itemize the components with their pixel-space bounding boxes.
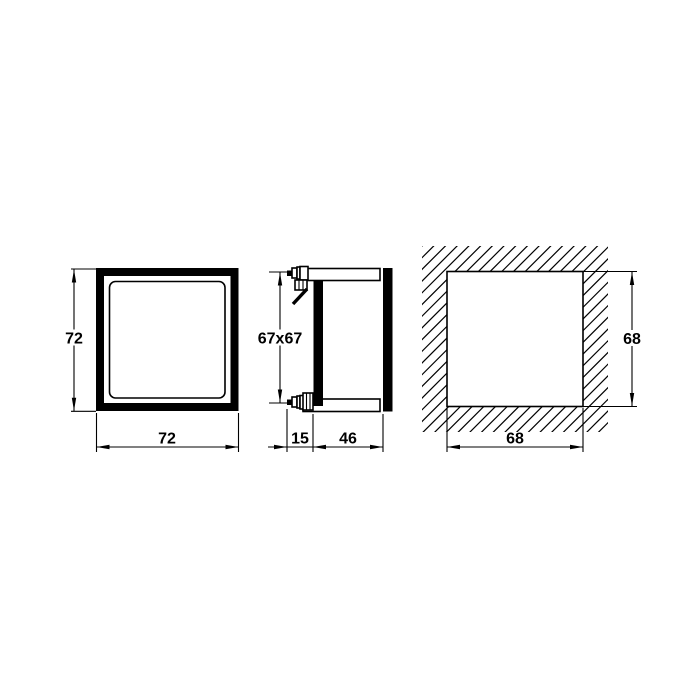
side-face-dimension: 67x67 (256, 272, 304, 403)
arrowhead (313, 445, 326, 449)
arrowhead (370, 445, 383, 449)
arrowhead (97, 445, 110, 449)
front-height-dimension: 72 (61, 269, 96, 411)
side-face-label: 67x67 (258, 331, 303, 348)
arrowhead (447, 445, 460, 449)
side-rear-frame-bar (314, 281, 324, 406)
side-view: 67x67 15 46 (256, 267, 393, 453)
arrowhead (226, 445, 239, 449)
drawing-canvas: 72 72 (0, 0, 700, 700)
side-clamp-screw-top (287, 267, 308, 305)
arrowhead (274, 445, 287, 449)
arrowhead (278, 390, 282, 403)
side-clamp-depth-label: 15 (291, 431, 309, 448)
side-front-bezel-bar (383, 268, 393, 412)
front-width-dimension: 72 (97, 413, 239, 452)
side-body-depth-label: 46 (339, 431, 357, 448)
panel-height-label: 68 (623, 331, 641, 348)
front-width-label: 72 (158, 431, 176, 448)
clamp-block (300, 267, 308, 281)
panel-height-dimension: 68 (583, 272, 646, 407)
arrowhead (72, 398, 76, 411)
side-depth-dimensions: 15 46 (268, 409, 383, 452)
arrowhead (630, 393, 634, 406)
arrowhead (570, 445, 583, 449)
panel-cutout-opening (447, 272, 583, 407)
hatch-line (593, 240, 700, 438)
arrowhead (278, 273, 282, 286)
side-case-top-wall (303, 269, 380, 281)
arrowhead (630, 272, 634, 285)
arrowhead (72, 270, 76, 283)
technical-drawing: 72 72 (0, 0, 700, 700)
panel-width-dimension: 68 (447, 408, 583, 452)
front-view: 72 72 (61, 268, 239, 452)
side-clamp-screw-bottom (287, 393, 313, 410)
front-display-window (110, 282, 226, 399)
front-height-label: 72 (65, 331, 83, 348)
clamp-nut (303, 393, 313, 410)
panel-width-label: 68 (506, 431, 524, 448)
side-clamp-spring (293, 289, 307, 304)
